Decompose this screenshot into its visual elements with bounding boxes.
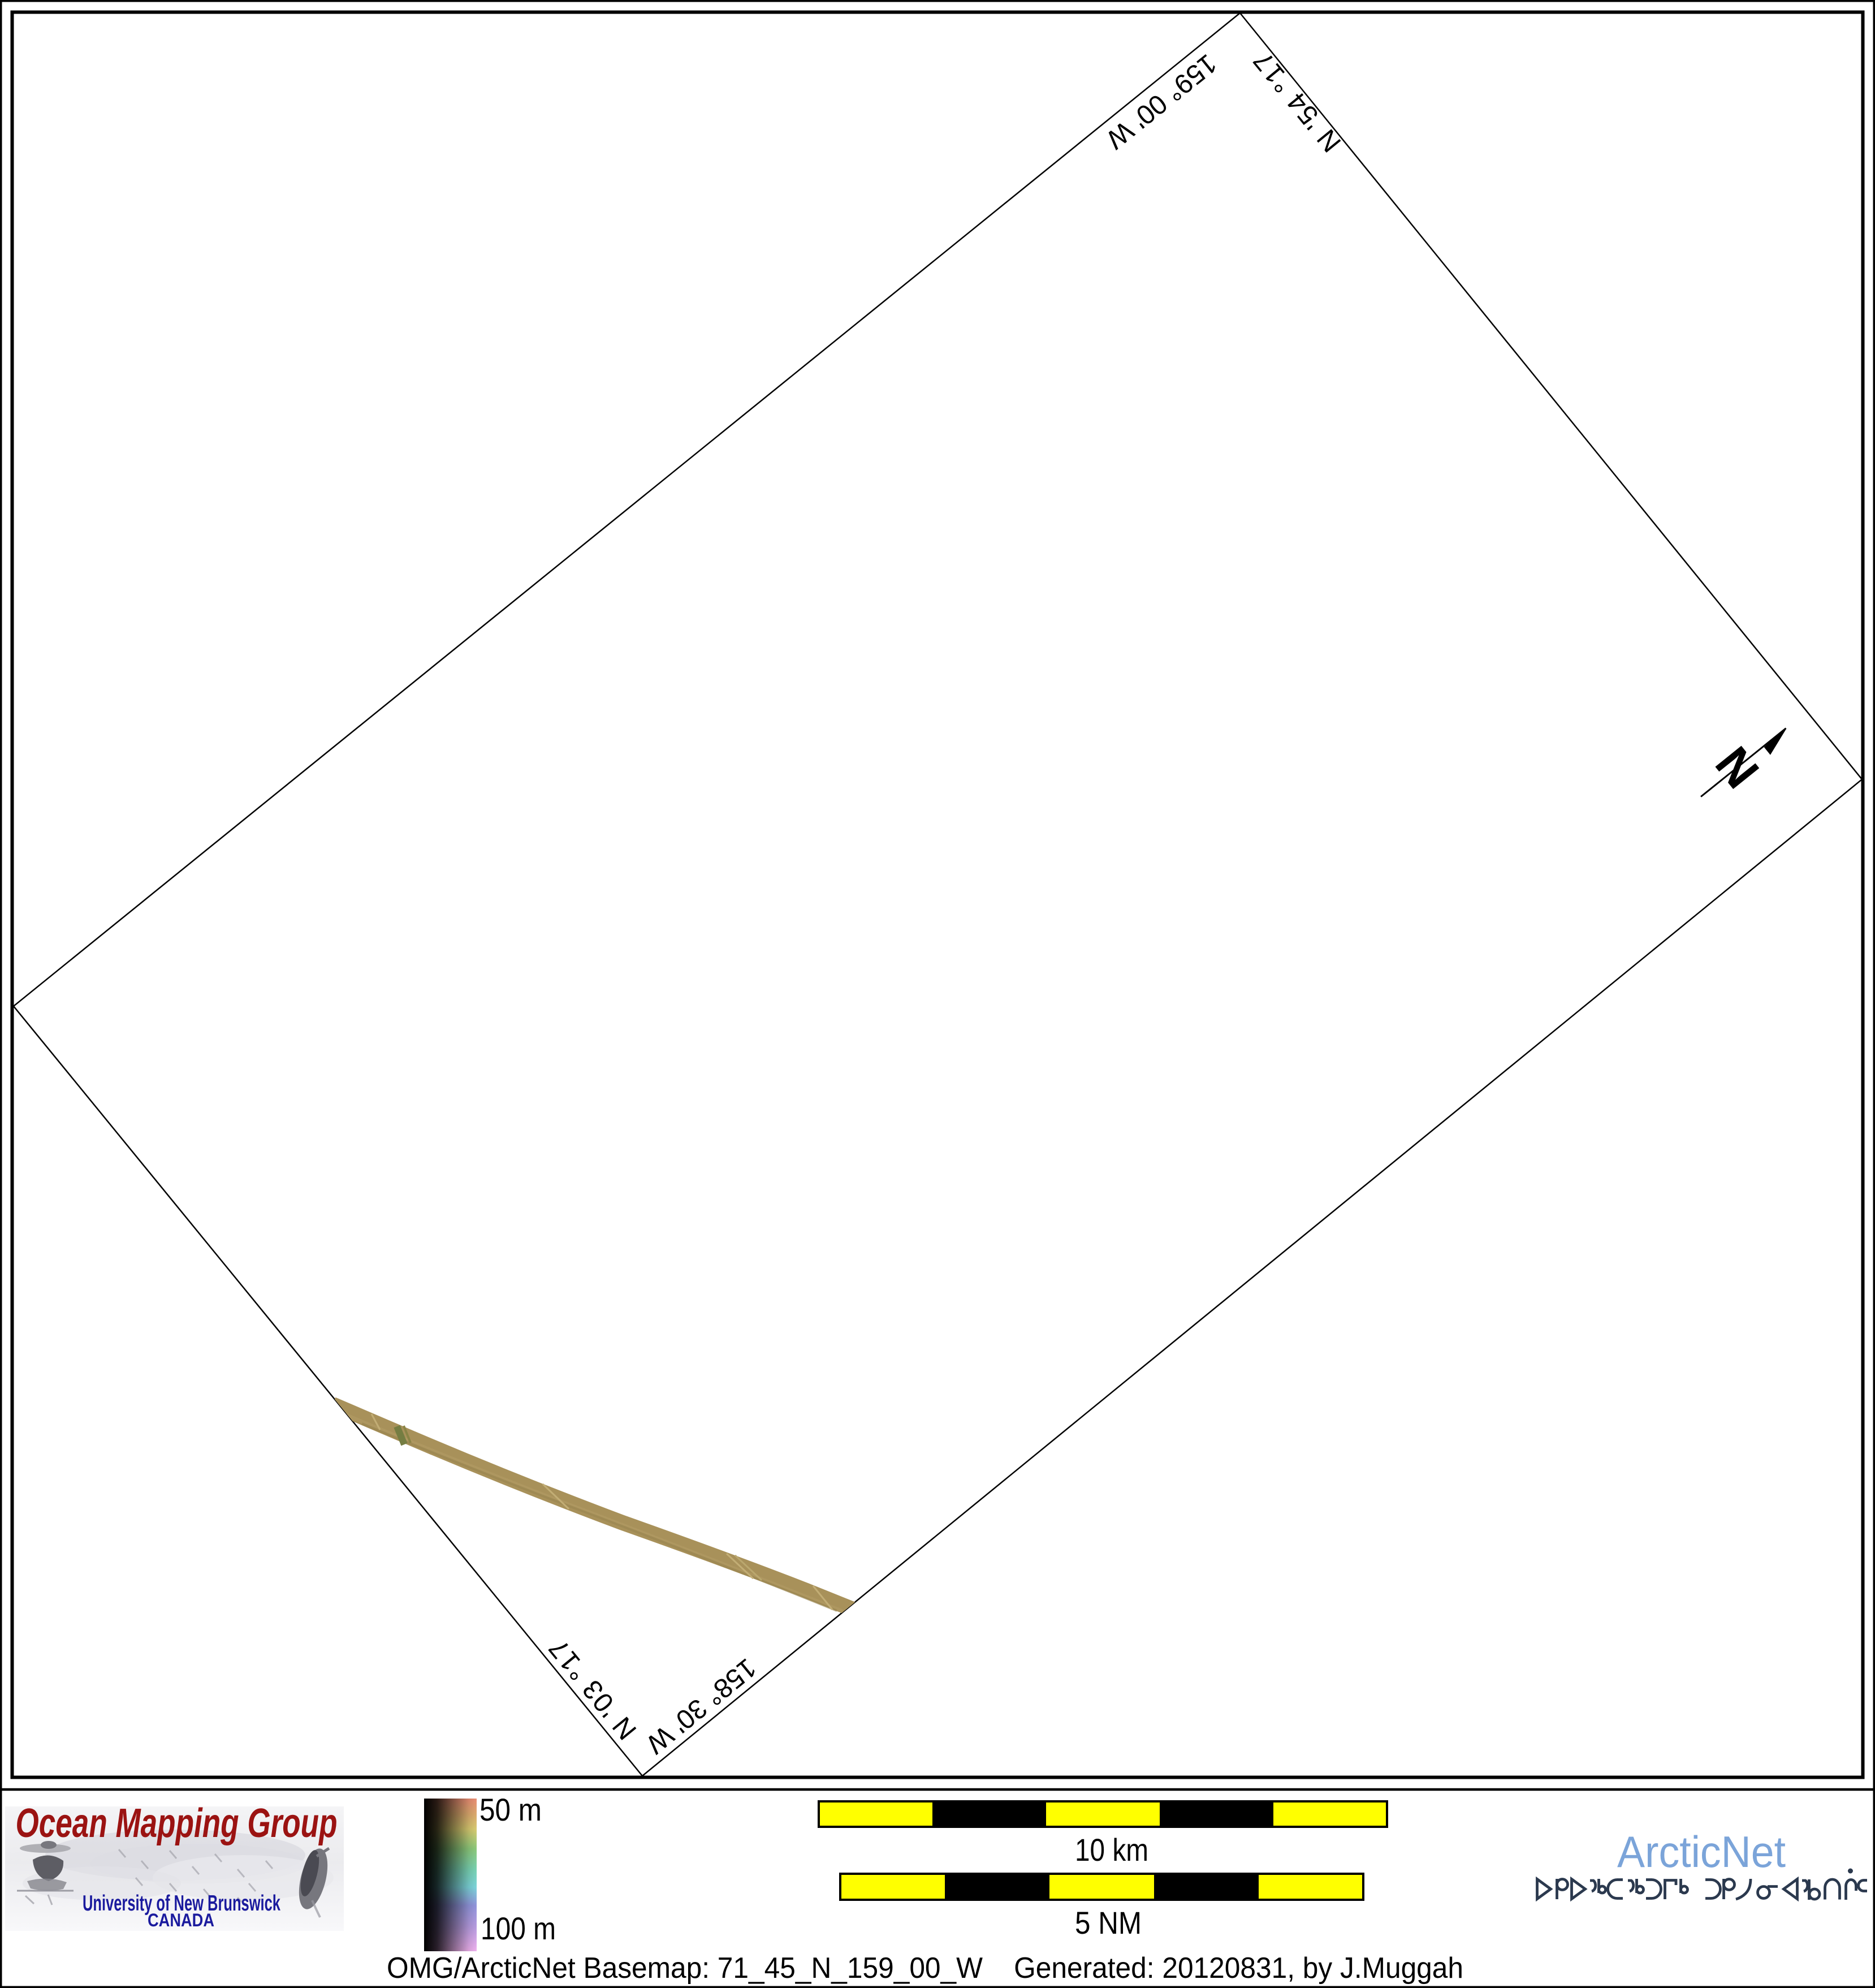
svg-text:Ocean Mapping Group: Ocean Mapping Group [16, 1801, 338, 1846]
svg-text:CANADA: CANADA [148, 1910, 214, 1930]
svg-text:50 m: 50 m [479, 1792, 542, 1827]
svg-text:5 NM: 5 NM [1075, 1905, 1142, 1940]
svg-text:10 km: 10 km [1075, 1832, 1148, 1868]
svg-text:100 m: 100 m [481, 1911, 556, 1946]
svg-text:ArcticNet: ArcticNet [1617, 1827, 1786, 1877]
svg-text:OMG/ArcticNet Basemap: 71_45_N: OMG/ArcticNet Basemap: 71_45_N_159_00_W … [387, 1952, 1463, 1985]
